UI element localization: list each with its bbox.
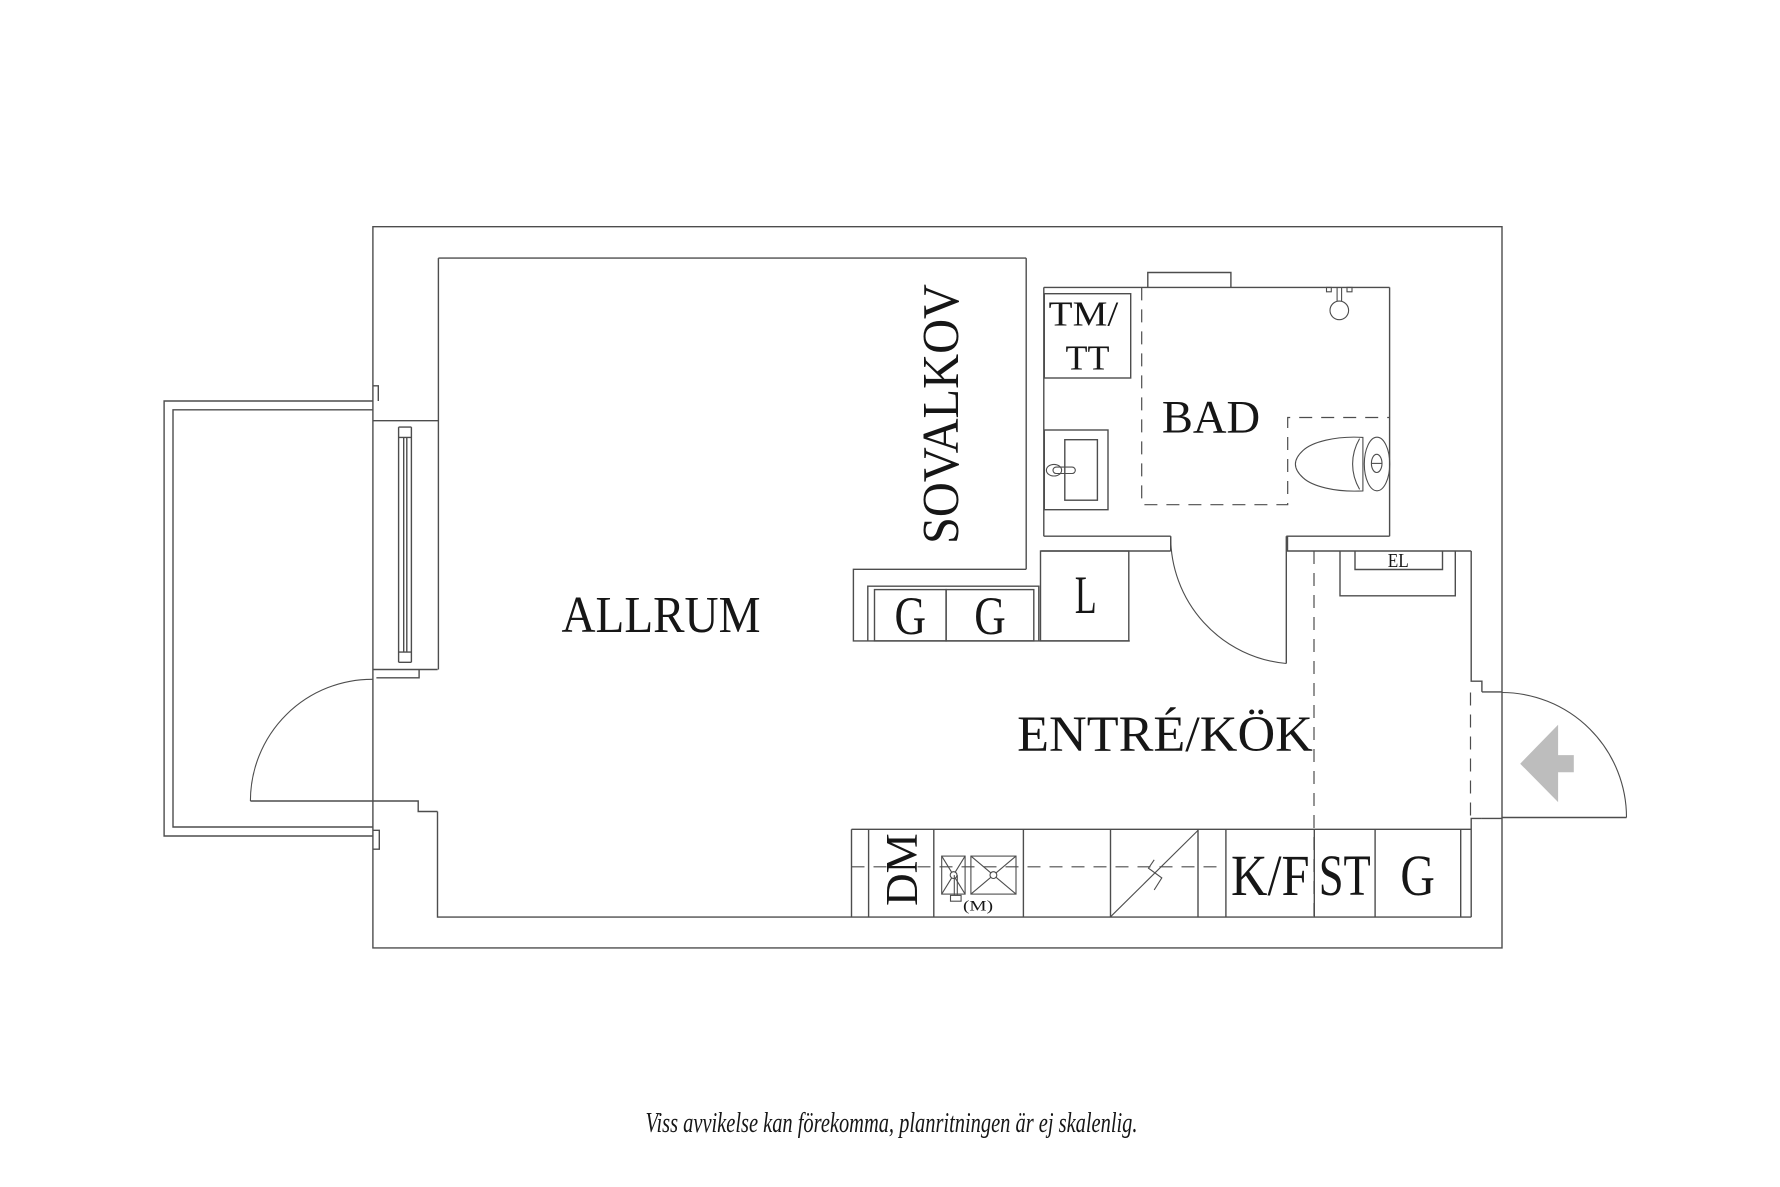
svg-text:K/F: K/F xyxy=(1231,843,1310,908)
svg-text:TT: TT xyxy=(1066,339,1110,378)
svg-text:EL: EL xyxy=(1388,550,1409,572)
svg-text:G: G xyxy=(974,586,1006,646)
svg-text:L: L xyxy=(1075,565,1097,625)
svg-text:SOVALKOV: SOVALKOV xyxy=(913,284,970,544)
svg-text:DM: DM xyxy=(877,833,927,906)
svg-text:TM/: TM/ xyxy=(1049,294,1119,333)
svg-text:G: G xyxy=(1400,843,1435,908)
svg-text:ALLRUM: ALLRUM xyxy=(562,587,761,644)
svg-text:(M): (M) xyxy=(963,899,993,915)
svg-text:BAD: BAD xyxy=(1162,391,1260,443)
svg-text:G: G xyxy=(895,586,927,646)
svg-text:ST: ST xyxy=(1319,843,1371,908)
svg-text:ENTRÉ/KÖK: ENTRÉ/KÖK xyxy=(1017,707,1313,763)
svg-text:Viss avvikelse kan förekomma,: Viss avvikelse kan förekomma, planritnin… xyxy=(646,1108,1138,1139)
